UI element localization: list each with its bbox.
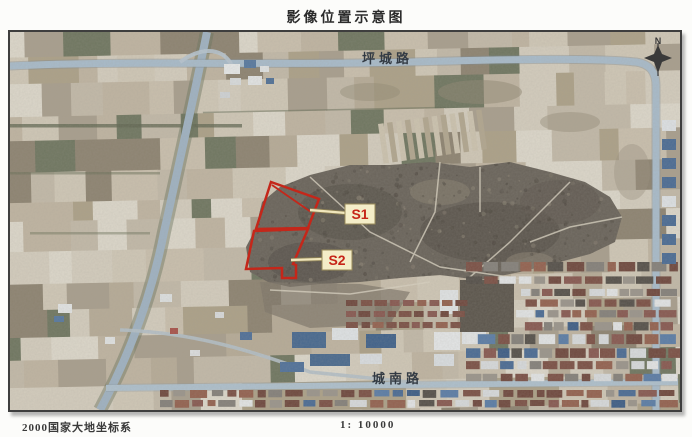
s1-label: S1 bbox=[351, 206, 368, 222]
s2-label: S2 bbox=[328, 252, 345, 268]
map-svg: S1 S2 坪城路 城南路 N bbox=[10, 32, 680, 410]
road-label-pingcheng: 坪城路 bbox=[362, 51, 413, 66]
s2-leader-line bbox=[291, 259, 323, 260]
road-label-chengnan: 城南路 bbox=[372, 371, 423, 386]
map-frame: S1 S2 坪城路 城南路 N bbox=[8, 30, 682, 412]
scale-label: 1: 10000 bbox=[340, 419, 395, 431]
page-title: 影像位置示意图 bbox=[0, 7, 692, 27]
coordinate-system-label: 2000国家大地坐标系 bbox=[22, 419, 132, 435]
